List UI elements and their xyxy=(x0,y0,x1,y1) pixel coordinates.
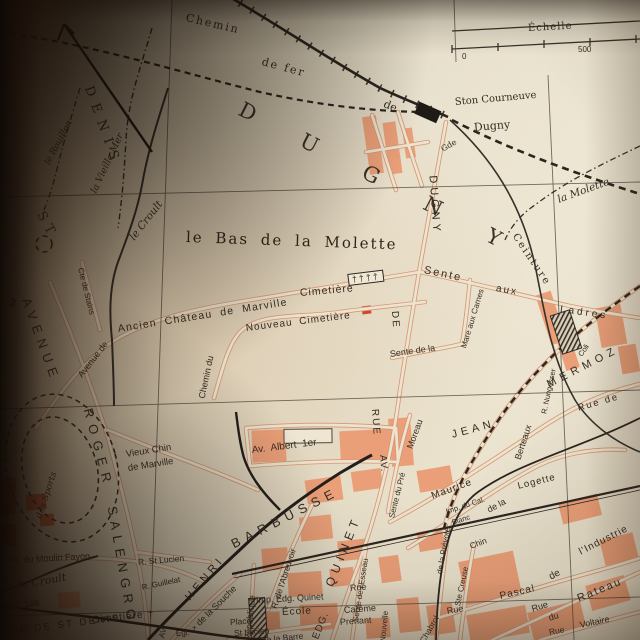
cemetery-cross-symbol: † xyxy=(148,610,153,619)
boundary-dashed-top xyxy=(0,32,428,112)
label-rue-vertical: RUE xyxy=(369,409,381,437)
grid-number-2: 2 xyxy=(10,298,16,309)
label-place-st-lucien: St Lucien xyxy=(234,627,270,638)
grid-number-3: 3 xyxy=(4,508,10,519)
label-ecole: École xyxy=(282,606,312,618)
station-building xyxy=(414,102,441,124)
label-station-dugny: Dugny xyxy=(474,119,511,133)
label-scale-500: 500 xyxy=(578,46,591,54)
label-de-vertical: DE xyxy=(389,311,400,330)
map-photo: DUGNY ST DENIS le Bas de la Molette Chem… xyxy=(0,0,640,640)
label-scale-zero: 0 xyxy=(462,53,466,61)
church-cross-symbol: † xyxy=(192,626,196,634)
label-place: Place xyxy=(230,617,252,627)
label-eglise: Egl. xyxy=(176,629,190,638)
label-rue-esseau: Rue xyxy=(350,583,367,593)
railway-main-line xyxy=(228,0,448,117)
label-av-vertical: AV. xyxy=(377,455,388,473)
